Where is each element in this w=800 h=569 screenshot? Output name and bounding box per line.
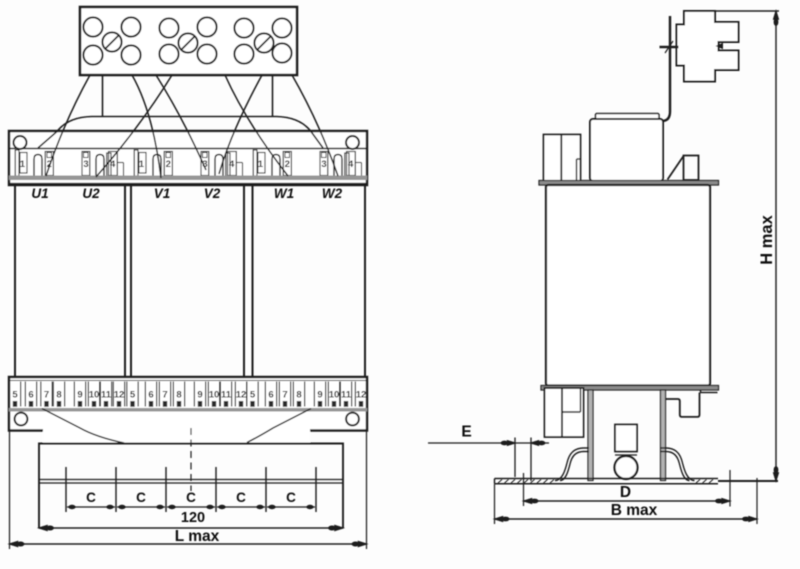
svg-text:E: E: [461, 424, 471, 441]
svg-text:4: 4: [348, 159, 354, 170]
svg-text:10: 10: [209, 390, 220, 401]
svg-text:6: 6: [148, 390, 153, 401]
svg-text:12: 12: [236, 390, 247, 401]
svg-text:5: 5: [250, 390, 256, 401]
svg-text:U1: U1: [31, 186, 48, 201]
svg-text:9: 9: [77, 390, 82, 401]
svg-text:W1: W1: [274, 186, 294, 201]
svg-text:V1: V1: [154, 186, 171, 201]
svg-text:6: 6: [28, 390, 33, 401]
svg-text:2: 2: [285, 159, 290, 170]
svg-text:2: 2: [166, 159, 171, 170]
svg-text:3: 3: [321, 159, 326, 170]
svg-text:C: C: [286, 490, 296, 505]
svg-text:7: 7: [282, 390, 287, 401]
svg-text:9: 9: [197, 390, 202, 401]
svg-text:C: C: [136, 490, 146, 505]
svg-text:11: 11: [221, 390, 232, 401]
svg-text:L max: L max: [175, 528, 220, 545]
svg-text:5: 5: [12, 390, 18, 401]
svg-text:W2: W2: [322, 186, 343, 201]
svg-text:C: C: [86, 490, 96, 505]
svg-text:8: 8: [176, 390, 181, 401]
svg-text:H max: H max: [758, 214, 776, 264]
svg-text:5: 5: [130, 390, 136, 401]
svg-text:11: 11: [341, 390, 352, 401]
svg-text:10: 10: [329, 390, 340, 401]
svg-text:1: 1: [20, 159, 26, 170]
svg-text:C: C: [186, 490, 196, 505]
svg-text:4: 4: [229, 159, 235, 170]
svg-text:C: C: [236, 490, 246, 505]
svg-text:D: D: [620, 484, 631, 501]
svg-text:12: 12: [114, 390, 125, 401]
svg-text:8: 8: [296, 390, 301, 401]
svg-text:V2: V2: [204, 186, 221, 201]
svg-text:1: 1: [258, 159, 264, 170]
svg-text:120: 120: [181, 510, 205, 526]
svg-text:10: 10: [89, 390, 100, 401]
svg-text:6: 6: [268, 390, 273, 401]
svg-text:7: 7: [44, 390, 49, 401]
svg-text:U2: U2: [82, 186, 100, 201]
svg-text:11: 11: [101, 390, 112, 401]
svg-text:8: 8: [56, 390, 61, 401]
svg-text:3: 3: [83, 159, 88, 170]
svg-text:1: 1: [139, 159, 145, 170]
svg-text:7: 7: [162, 390, 167, 401]
svg-text:12: 12: [356, 390, 367, 401]
svg-text:9: 9: [317, 390, 322, 401]
svg-text:B max: B max: [611, 502, 658, 519]
